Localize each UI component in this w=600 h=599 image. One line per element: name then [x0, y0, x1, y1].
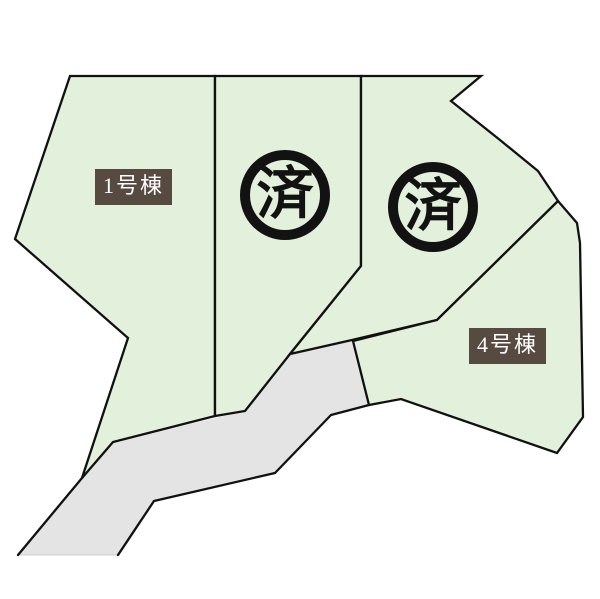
site-plan-svg	[0, 0, 600, 599]
lot-map: 1号棟 4号棟 済 済	[0, 0, 600, 599]
label-plot-1: 1号棟	[95, 169, 172, 205]
label-plot-4: 4号棟	[469, 328, 546, 364]
plot-1	[15, 76, 215, 478]
sold-stamp-text: 済	[257, 166, 314, 223]
sold-stamp-plot-2: 済	[240, 150, 330, 240]
sold-stamp-plot-3: 済	[388, 162, 478, 252]
sold-stamp-text: 済	[405, 178, 462, 235]
